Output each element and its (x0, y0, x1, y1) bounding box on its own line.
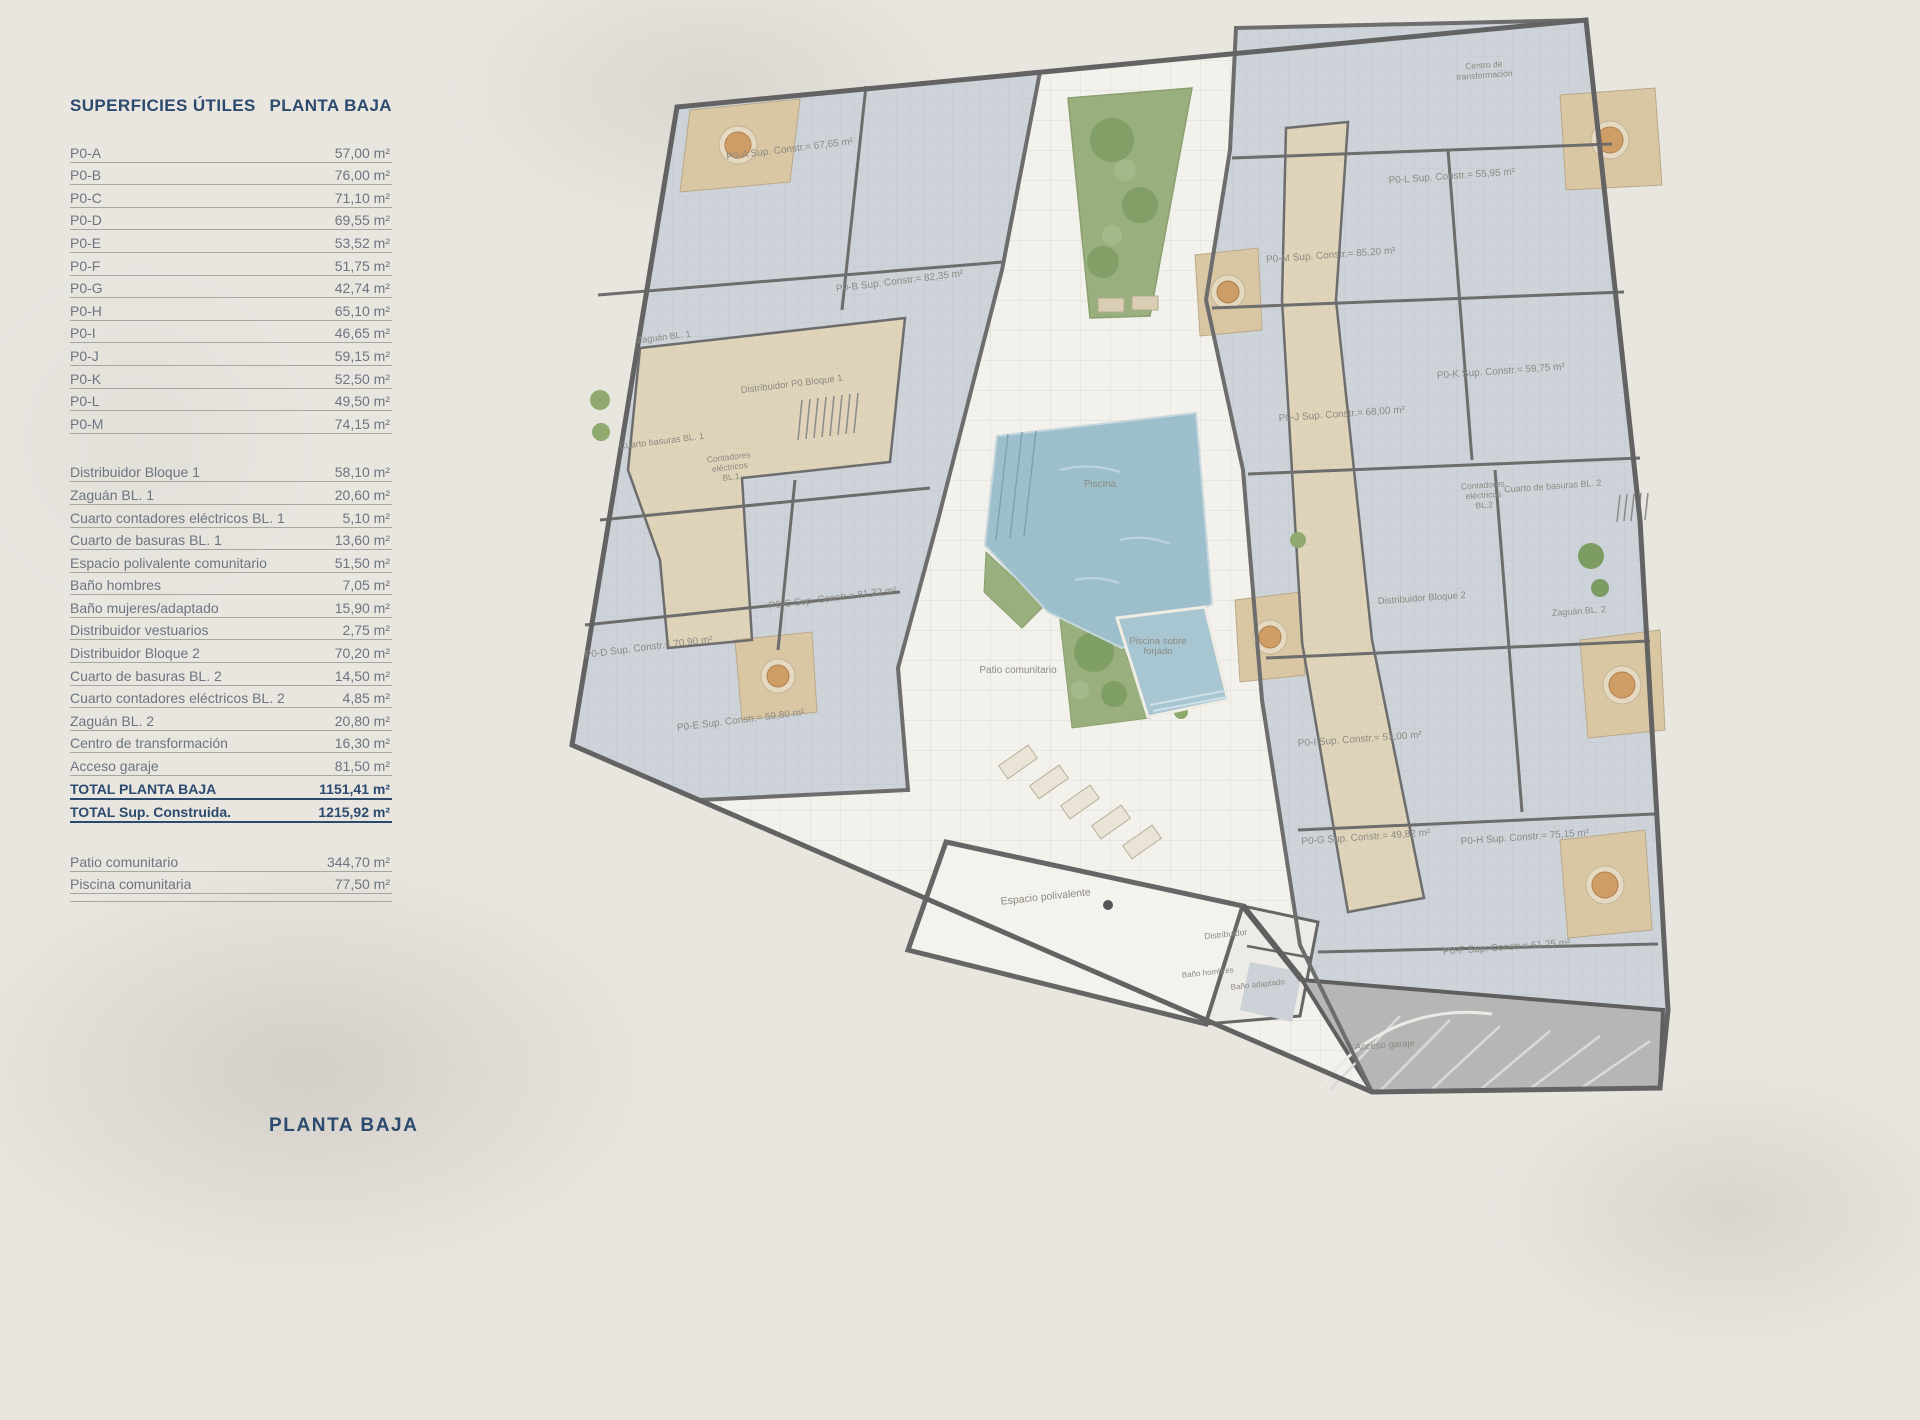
row-label: Distribuidor Bloque 1 (70, 464, 200, 480)
row-label: P0-E (70, 235, 101, 251)
row-label: Patio comunitario (70, 854, 178, 870)
row-value: 59,15 m² (335, 348, 390, 364)
row-value: 2,75 m² (343, 622, 390, 638)
row-label: P0-M (70, 416, 103, 432)
row-label: Cuarto contadores eléctricos BL. 2 (70, 690, 285, 706)
row-label: Baño hombres (70, 577, 161, 593)
row-label: Acceso garaje (70, 758, 159, 774)
units-table: P0-A 57,00 m² P0-B 76,00 m² P0-C 71,10 m… (70, 140, 392, 434)
table-row: Distribuidor vestuarios 2,75 m² (70, 618, 392, 641)
row-value: 74,15 m² (335, 416, 390, 432)
table-row: Cuarto contadores eléctricos BL. 1 5,10 … (70, 505, 392, 528)
row-value: 81,50 m² (335, 758, 390, 774)
row-value: 51,50 m² (335, 555, 390, 571)
table-row: Centro de transformación 16,30 m² (70, 731, 392, 754)
row-label: Cuarto contadores eléctricos BL. 1 (70, 510, 285, 526)
row-value: 20,60 m² (335, 487, 390, 503)
row-label: Zaguán BL. 1 (70, 487, 154, 503)
row-value: 7,05 m² (343, 577, 390, 593)
row-label: Cuarto de basuras BL. 1 (70, 532, 222, 548)
table-row: P0-M 74,15 m² (70, 411, 392, 434)
row-value: 71,10 m² (335, 190, 390, 206)
table-subtitle: PLANTA BAJA (270, 96, 392, 116)
table-row: Piscina comunitaria 77,50 m² (70, 872, 392, 895)
table-row: Patio comunitario 344,70 m² (70, 849, 392, 872)
table-row: Espacio polivalente comunitario 51,50 m² (70, 550, 392, 573)
table-header: SUPERFICIES ÚTILES PLANTA BAJA (70, 96, 392, 116)
table-row: Zaguán BL. 1 20,60 m² (70, 482, 392, 505)
totals-table: TOTAL PLANTA BAJA 1151,41 m² TOTAL Sup. … (70, 776, 392, 823)
table-row: Distribuidor Bloque 2 70,20 m² (70, 640, 392, 663)
row-label: P0-J (70, 348, 99, 364)
table-row: TOTAL Sup. Construida. 1215,92 m² (70, 800, 392, 824)
row-label: P0-F (70, 258, 100, 274)
table-row: Baño mujeres/adaptado 15,90 m² (70, 595, 392, 618)
table-row: Acceso garaje 81,50 m² (70, 753, 392, 776)
table-row: P0-I 46,65 m² (70, 321, 392, 344)
row-label: P0-A (70, 145, 101, 161)
row-value: 14,50 m² (335, 668, 390, 684)
row-value: 69,55 m² (335, 212, 390, 228)
plan-room-label: Patio comunitario (979, 665, 1057, 676)
row-value: 58,10 m² (335, 464, 390, 480)
surface-table-panel: SUPERFICIES ÚTILES PLANTA BAJA P0-A 57,0… (70, 96, 392, 902)
row-label: Baño mujeres/adaptado (70, 600, 219, 616)
table-row: Baño hombres 7,05 m² (70, 573, 392, 596)
row-value: 53,52 m² (335, 235, 390, 251)
row-value: 51,75 m² (335, 258, 390, 274)
row-value: 5,10 m² (343, 510, 390, 526)
row-label: Espacio polivalente comunitario (70, 555, 267, 571)
row-value: 46,65 m² (335, 325, 390, 341)
row-label: Centro de transformación (70, 735, 228, 751)
table-row: P0-A 57,00 m² (70, 140, 392, 163)
extras-table: Patio comunitario 344,70 m² Piscina comu… (70, 849, 392, 894)
row-value: 1215,92 m² (318, 804, 390, 820)
table-row: P0-L 49,50 m² (70, 389, 392, 412)
row-label: Zaguán BL. 2 (70, 713, 154, 729)
row-value: 344,70 m² (327, 854, 390, 870)
row-value: 13,60 m² (335, 532, 390, 548)
row-value: 49,50 m² (335, 393, 390, 409)
row-value: 77,50 m² (335, 876, 390, 892)
table-row: P0-G 42,74 m² (70, 276, 392, 299)
table-row: P0-F 51,75 m² (70, 253, 392, 276)
plan-room-label: Piscina (1084, 479, 1117, 490)
row-label: TOTAL Sup. Construida. (70, 804, 231, 820)
row-label: P0-L (70, 393, 100, 409)
table-row: P0-E 53,52 m² (70, 230, 392, 253)
row-label: Piscina comunitaria (70, 876, 191, 892)
row-value: 16,30 m² (335, 735, 390, 751)
table-closing-rule (70, 901, 392, 902)
table-row: P0-K 52,50 m² (70, 366, 392, 389)
row-label: Cuarto de basuras BL. 2 (70, 668, 222, 684)
row-label: P0-B (70, 167, 101, 183)
table-title: SUPERFICIES ÚTILES (70, 96, 256, 116)
row-value: 57,00 m² (335, 145, 390, 161)
row-label: Distribuidor vestuarios (70, 622, 209, 638)
table-row: P0-D 69,55 m² (70, 208, 392, 231)
row-value: 52,50 m² (335, 371, 390, 387)
row-value: 1151,41 m² (319, 781, 390, 797)
table-row: Zaguán BL. 2 20,80 m² (70, 708, 392, 731)
row-label: TOTAL PLANTA BAJA (70, 781, 216, 797)
table-row: P0-J 59,15 m² (70, 343, 392, 366)
table-row: Cuarto contadores eléctricos BL. 2 4,85 … (70, 686, 392, 709)
table-row: TOTAL PLANTA BAJA 1151,41 m² (70, 776, 392, 800)
row-label: P0-I (70, 325, 96, 341)
table-row: Distribuidor Bloque 1 58,10 m² (70, 460, 392, 483)
row-value: 65,10 m² (335, 303, 390, 319)
row-value: 20,80 m² (335, 713, 390, 729)
row-label: P0-D (70, 212, 102, 228)
table-row: Cuarto de basuras BL. 2 14,50 m² (70, 663, 392, 686)
table-row: P0-B 76,00 m² (70, 163, 392, 186)
row-label: P0-C (70, 190, 102, 206)
table-row: Cuarto de basuras BL. 1 13,60 m² (70, 528, 392, 551)
row-value: 15,90 m² (335, 600, 390, 616)
common-areas-table: Distribuidor Bloque 1 58,10 m² Zaguán BL… (70, 460, 392, 776)
row-value: 76,00 m² (335, 167, 390, 183)
row-label: P0-G (70, 280, 103, 296)
row-label: P0-H (70, 303, 102, 319)
row-value: 4,85 m² (343, 690, 390, 706)
row-value: 70,20 m² (335, 645, 390, 661)
table-row: P0-C 71,10 m² (70, 185, 392, 208)
row-label: Distribuidor Bloque 2 (70, 645, 200, 661)
row-value: 42,74 m² (335, 280, 390, 296)
table-row: P0-H 65,10 m² (70, 298, 392, 321)
plan-title: PLANTA BAJA (269, 1115, 419, 1137)
row-label: P0-K (70, 371, 101, 387)
